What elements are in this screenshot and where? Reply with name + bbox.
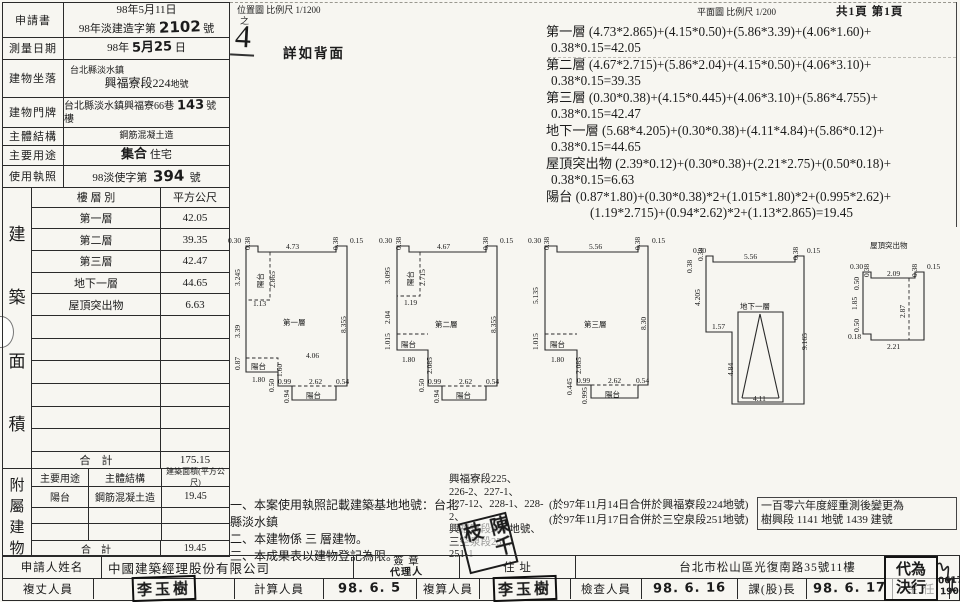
building-location-label: 建物坐落 [3, 59, 64, 97]
svg-text:2.21: 2.21 [887, 342, 900, 351]
floorplan-basement: 0.300.380.385.560.380.154.205地下一層1.579.1… [676, 226, 861, 426]
building-address-value: 台北縣淡水鎮興福寮66巷 143 號 樓 [64, 98, 229, 127]
area-total-value: 175.15 [161, 454, 229, 466]
formula-line: 0.38*0.15=44.65 [546, 139, 958, 155]
building-area-section: 建 築 面 積 樓 層 別 平方公尺 第一層 42.05 第二層 39.35 第… [3, 187, 229, 469]
annex-area: 19.45 [162, 491, 229, 502]
svg-text:8.355: 8.355 [489, 316, 498, 333]
svg-text:1.57: 1.57 [712, 322, 725, 331]
signoff-table: 申請人姓名 中國建築經理股份有限公司 簽 章 代理人 住 址 台北市松山區光復南… [2, 555, 960, 601]
svg-text:第三層: 第三層 [584, 319, 607, 329]
floorplan-first-floor: 0.300.384.730.380.153.245陽台2.8651.133.39… [226, 226, 381, 421]
survey-date-handwritten: 5月25 [132, 39, 173, 57]
registration-form: 申請書 98年5月11日 98年淡建造字第 2102 號 測量日期 98年 5月… [2, 2, 230, 557]
floorplan-roof-structure: 屋頂突出物0.300.382.090.380.150.501.850.500.1… [845, 236, 960, 361]
annex-section: 附 屬 建 物 主要用途 主體結構 建築面積(平方公尺) 陽台 鋼筋混凝土造 1… [3, 468, 229, 556]
section-chief-label: 課(股)長 [738, 578, 807, 599]
resurveyor-name-stamp: 李玉樹 [132, 575, 197, 602]
delegate-stamp-line: 代為 [896, 561, 926, 579]
address-number-handwritten: 143 [176, 97, 204, 114]
svg-text:0.38: 0.38 [542, 237, 551, 250]
annex-row-empty [32, 508, 229, 525]
svg-text:3.245: 3.245 [233, 269, 242, 286]
floorplan-second-floor: 0.300.384.670.380.153.095陽台2.7151.192.04… [377, 226, 527, 421]
floor-name: 第二層 [32, 229, 161, 250]
svg-text:0.38: 0.38 [633, 237, 642, 250]
table-row-empty [32, 361, 229, 384]
svg-text:0.54: 0.54 [486, 377, 499, 386]
building-location-row: 建物坐落 台北縣淡水鎮 興福寮段224地號 [3, 59, 229, 98]
merge-notes: (於97年11月14日合併於興福寮段224地號) (於97年11月17日合併於三… [549, 498, 759, 528]
svg-text:陽台: 陽台 [255, 273, 265, 288]
merge-note-line: (於97年11月14日合併於興福寮段224地號) [549, 498, 759, 513]
structure-row: 主體結構 鋼筋混凝土造 [3, 127, 229, 146]
formula-line: 0.38*0.15=39.35 [546, 73, 958, 89]
signature-time-1: 0617 [938, 576, 960, 587]
table-row: 第三層 42.47 [32, 251, 229, 273]
svg-text:4.205: 4.205 [693, 289, 702, 306]
svg-text:0.38: 0.38 [394, 237, 403, 250]
formula-line: 第一層 (4.73*2.865)+(4.15*0.50)+(5.86*3.39)… [546, 24, 958, 40]
application-label: 申請書 [3, 3, 64, 37]
building-area-vertical-label: 建 築 面 積 [3, 187, 32, 468]
note-line: 一、本案使用執照記載建築基地地號：台北縣淡水鎮 [230, 497, 460, 531]
table-row: 第一層 42.05 [32, 208, 229, 230]
formula-balcony: 陽台 (0.87*1.80)+(0.30*0.38)*2+(1.015*1.80… [546, 189, 958, 221]
section-chief-date-zone: 98. 6. 17 [807, 578, 893, 599]
checker-date-zone: 98. 6. 16 [642, 578, 738, 599]
signature-cell: 簽 章 代理人 [354, 556, 460, 578]
address-label: 住 址 [460, 556, 576, 578]
survey-date-value: 98年 5月25 日 [107, 40, 186, 56]
svg-text:0.94: 0.94 [432, 390, 441, 403]
svg-text:2.62: 2.62 [608, 376, 621, 385]
license-value: 98淡使字第 394 號 [92, 167, 200, 186]
svg-text:1.80: 1.80 [402, 355, 415, 364]
calculator-label: 計算人員 [235, 578, 324, 599]
annex-total-label: 合 計 [32, 541, 161, 556]
annex-row: 陽台 鋼筋混凝土造 19.45 [32, 487, 229, 508]
annex-use: 陽台 [32, 487, 89, 507]
svg-text:1.80: 1.80 [252, 375, 265, 384]
svg-text:0.50: 0.50 [267, 379, 276, 392]
formula-floor1: 第一層 (4.73*2.865)+(4.15*0.50)+(5.86*3.39)… [546, 24, 958, 56]
svg-text:5.56: 5.56 [744, 252, 757, 261]
formula-line: 第三層 (0.30*0.38)+(4.15*0.445)+(4.06*3.10)… [546, 90, 958, 106]
svg-text:4.67: 4.67 [437, 242, 450, 251]
structure-label: 主體結構 [3, 127, 64, 145]
signature-handwritten: 代理人 [390, 566, 423, 578]
license-row: 使用執照 98淡使字第 394 號 [3, 165, 229, 188]
plan-scale-note: 平面圖 比例尺 1/200 [697, 5, 776, 18]
application-row: 申請書 98年5月11日 98年淡建造字第 2102 號 [3, 3, 229, 38]
table-row: 地下一層 44.65 [32, 273, 229, 295]
svg-text:地下一層: 地下一層 [740, 301, 770, 311]
svg-text:0.15: 0.15 [807, 246, 820, 255]
svg-text:1.19: 1.19 [404, 298, 417, 307]
table-row-empty [32, 384, 229, 407]
annex-col-area: 建築面積(平方公尺) [162, 466, 229, 488]
applicant-name: 中國建築經理股份有限公司 [102, 556, 354, 578]
page-count: 共1頁 第1頁 [836, 3, 903, 19]
svg-text:2.09: 2.09 [887, 269, 900, 278]
svg-text:1.85: 1.85 [850, 297, 859, 310]
applicant-label: 申請人姓名 [3, 556, 102, 578]
svg-text:5.56: 5.56 [589, 242, 602, 251]
svg-text:0.99: 0.99 [428, 377, 441, 386]
signature-label: 簽 章 [393, 556, 420, 567]
handwritten-page-number: 4 [230, 17, 256, 56]
svg-text:2.085: 2.085 [425, 357, 434, 374]
delegate-stamp-line: 決行 [896, 579, 926, 597]
main-use-handwritten: 集合 [121, 146, 148, 163]
svg-text:陽台: 陽台 [550, 339, 565, 349]
annex-vertical-label: 附 屬 建 物 [3, 468, 32, 556]
building-address-label: 建物門牌 [3, 97, 64, 127]
annex-row-empty [32, 524, 229, 541]
svg-text:5.135: 5.135 [531, 287, 540, 304]
svg-text:第二層: 第二層 [435, 319, 458, 329]
table-row-empty [32, 407, 229, 430]
svg-text:第一層: 第一層 [283, 317, 306, 327]
svg-text:2.865: 2.865 [268, 271, 277, 288]
note-line: 二、本建物係 三 層建物。 [230, 531, 460, 548]
svg-text:0.15: 0.15 [652, 236, 665, 245]
svg-text:0.15: 0.15 [350, 236, 363, 245]
annex-total-value: 19.45 [161, 543, 229, 554]
application-number-handwritten: 2102 [158, 17, 200, 37]
rechecker-label: 複算人員 [417, 578, 480, 599]
annex-structure: 鋼筋混凝土造 [89, 487, 162, 507]
floor-area: 6.63 [161, 299, 229, 311]
svg-text:0.445: 0.445 [565, 378, 574, 395]
table-row-empty [32, 316, 229, 339]
svg-text:2.87: 2.87 [898, 305, 907, 318]
svg-text:0.15: 0.15 [927, 262, 940, 271]
svg-text:3.095: 3.095 [383, 267, 392, 284]
svg-text:0.38: 0.38 [331, 237, 340, 250]
signature-time-2: 1900 [940, 587, 960, 598]
formula-line: (1.19*2.715)+(0.94*2.62)*2+(1.13*2.865)=… [546, 205, 958, 221]
svg-text:0.99: 0.99 [278, 377, 291, 386]
svg-text:陽台: 陽台 [405, 271, 415, 286]
area-table-header: 樓 層 別 平方公尺 [32, 187, 229, 208]
calculator-date-zone: 98. 6. 5 [324, 578, 417, 599]
table-row-empty [32, 339, 229, 362]
svg-text:0.54: 0.54 [336, 377, 349, 386]
svg-text:0.15: 0.15 [500, 236, 513, 245]
svg-text:1.015: 1.015 [383, 333, 392, 350]
location-township: 台北縣淡水鎮 [64, 65, 124, 76]
floor-area: 42.05 [161, 212, 229, 224]
svg-text:1.60: 1.60 [275, 364, 284, 377]
section-chief-date-stamp: 98. 6. 17 [813, 580, 886, 596]
checker-label: 檢查人員 [571, 578, 642, 599]
floor-name: 屋頂突出物 [32, 294, 161, 315]
svg-text:陽台: 陽台 [605, 389, 620, 399]
svg-text:1.13: 1.13 [253, 299, 266, 308]
floor-name: 地下一層 [32, 273, 161, 294]
delegate-approval-stamp: 代為 決行 [884, 556, 938, 601]
svg-text:2.62: 2.62 [459, 377, 472, 386]
formula-line: 屋頂突出物 (2.39*0.12)+(0.30*0.38)+(2.21*2.75… [546, 156, 958, 172]
structure-value: 鋼筋混凝土造 [119, 130, 173, 141]
svg-text:4.11: 4.11 [753, 394, 766, 403]
floor-area: 39.35 [161, 234, 229, 246]
formula-floor3: 第三層 (0.30*0.38)+(4.15*0.445)+(4.06*3.10)… [546, 90, 958, 122]
svg-text:0.30: 0.30 [228, 236, 241, 245]
svg-text:0.54: 0.54 [636, 376, 649, 385]
annex-col-use: 主要用途 [32, 468, 89, 486]
lot-line: 興福寮段225、 [449, 474, 554, 487]
area-calculation-formulas: 第一層 (4.73*2.865)+(4.15*0.50)+(5.86*3.39)… [546, 24, 958, 222]
resurveyor-stamp-zone: 李玉樹 [94, 578, 235, 599]
formula-line: 0.38*0.15=6.63 [546, 172, 958, 188]
table-row: 屋頂突出物 6.63 [32, 294, 229, 316]
svg-text:0.87: 0.87 [233, 357, 242, 370]
svg-text:0.50: 0.50 [417, 379, 426, 392]
svg-text:4.06: 4.06 [306, 351, 319, 360]
svg-text:0.30: 0.30 [379, 236, 392, 245]
resurvey-line: 一百零六年度經重測後變更為 [761, 500, 953, 514]
svg-text:陽台: 陽台 [401, 339, 416, 349]
building-address-row: 建物門牌 台北縣淡水鎮興福寮66巷 143 號 樓 [3, 97, 229, 128]
survey-date-label: 測量日期 [3, 37, 64, 59]
svg-text:陽台: 陽台 [456, 390, 471, 400]
svg-text:0.50: 0.50 [852, 319, 861, 332]
svg-text:4.73: 4.73 [286, 242, 299, 251]
main-use-label: 主要用途 [3, 145, 64, 165]
lot-line: 226-2、227-1、 [449, 487, 554, 500]
application-date: 98年5月11日 [116, 4, 176, 18]
application-number: 98年淡建造字第 2102 號 [79, 18, 214, 37]
svg-text:8.30: 8.30 [639, 317, 648, 330]
calculator-date-stamp: 98. 6. 5 [338, 580, 401, 596]
svg-text:0.18: 0.18 [848, 332, 861, 341]
svg-text:0.99: 0.99 [577, 376, 590, 385]
table-row: 第二層 39.35 [32, 229, 229, 251]
floor-name: 第一層 [32, 208, 161, 229]
column-floor: 樓 層 別 [32, 187, 161, 207]
formula-line: 0.38*0.15=42.05 [546, 40, 958, 56]
formula-roof: 屋頂突出物 (2.39*0.12)+(0.30*0.38)+(2.21*2.75… [546, 156, 958, 188]
formula-basement: 地下一層 (5.68*4.205)+(0.30*0.38)+(4.11*4.84… [546, 123, 958, 155]
formula-line: 地下一層 (5.68*4.205)+(0.30*0.38)+(4.11*4.84… [546, 123, 958, 139]
formula-line: 陽台 (0.87*1.80)+(0.30*0.38)*2+(1.015*1.80… [546, 189, 958, 205]
svg-text:陽台: 陽台 [306, 390, 321, 400]
main-use-row: 主要用途 集合 住宅 [3, 145, 229, 166]
svg-text:0.38: 0.38 [910, 264, 919, 277]
floor-area: 44.65 [161, 277, 229, 289]
svg-text:2.085: 2.085 [574, 357, 583, 374]
rechecker-stamp-zone: 李玉樹 [480, 578, 571, 599]
area-total-label: 合 計 [32, 452, 161, 468]
license-label: 使用執照 [3, 165, 64, 187]
svg-text:9.165: 9.165 [800, 333, 809, 350]
see-reverse-note: 詳如背面 [283, 42, 345, 62]
rechecker-name-stamp: 李玉樹 [493, 575, 558, 602]
formula-floor2: 第二層 (4.67*2.715)+(5.86*2.04)+(4.15*0.50)… [546, 57, 958, 89]
location-lot: 興福寮段224地號 [104, 76, 188, 92]
formula-line: 第二層 (4.67*2.715)+(5.86*2.04)+(4.15*0.50)… [546, 57, 958, 73]
svg-text:0.50: 0.50 [852, 277, 861, 290]
svg-text:0.94: 0.94 [282, 390, 291, 403]
resurvey-note-box: 一百零六年度經重測後變更為 樹興段 1141 地號 1439 建號 [757, 497, 957, 530]
survey-date-row: 測量日期 98年 5月25 日 [3, 37, 229, 60]
svg-text:0.38: 0.38 [791, 247, 800, 260]
annex-col-structure: 主體結構 [89, 468, 162, 486]
merge-note-line: (於97年11月17日合併於三空泉段251地號) [549, 513, 759, 528]
svg-text:0.38: 0.38 [696, 248, 705, 261]
checker-date-stamp: 98. 6. 16 [653, 580, 726, 596]
svg-text:2.715: 2.715 [418, 269, 427, 286]
svg-text:1.015: 1.015 [531, 333, 540, 350]
svg-text:0.38: 0.38 [243, 237, 252, 250]
svg-text:8.355: 8.355 [339, 316, 348, 333]
svg-text:1.80: 1.80 [551, 355, 564, 364]
formula-line: 0.38*0.15=42.47 [546, 106, 958, 122]
floor-name: 第三層 [32, 251, 161, 272]
svg-text:3.39: 3.39 [233, 325, 242, 338]
svg-text:2.62: 2.62 [309, 377, 322, 386]
svg-text:4.84: 4.84 [726, 363, 735, 376]
svg-text:0.995: 0.995 [580, 387, 589, 404]
license-number-handwritten: 394 [153, 166, 185, 186]
svg-text:陽台: 陽台 [251, 361, 266, 371]
annex-total-row: 合 計 19.45 [32, 541, 229, 556]
location-map-scale: 位置圖 比例尺 1/1200 [237, 3, 321, 16]
resurvey-line: 樹興段 1141 地號 1439 建號 [761, 514, 953, 528]
svg-text:0.38: 0.38 [862, 264, 871, 277]
annex-header: 主要用途 主體結構 建築面積(平方公尺) [32, 468, 229, 487]
svg-text:2.04: 2.04 [383, 311, 392, 324]
floor-area: 42.47 [161, 255, 229, 267]
main-use-value: 集合 住宅 [121, 147, 172, 163]
svg-text:0.38: 0.38 [481, 237, 490, 250]
floorplan-third-floor: 0.300.385.560.380.155.135第三層8.301.015陽台1… [527, 226, 677, 421]
column-sqm: 平方公尺 [161, 189, 229, 205]
svg-text:0.38: 0.38 [685, 260, 694, 273]
table-row-empty [32, 429, 229, 452]
svg-text:0.30: 0.30 [528, 236, 541, 245]
resurveyor-label: 複丈人員 [3, 578, 94, 599]
svg-text:屋頂突出物: 屋頂突出物 [870, 240, 908, 250]
